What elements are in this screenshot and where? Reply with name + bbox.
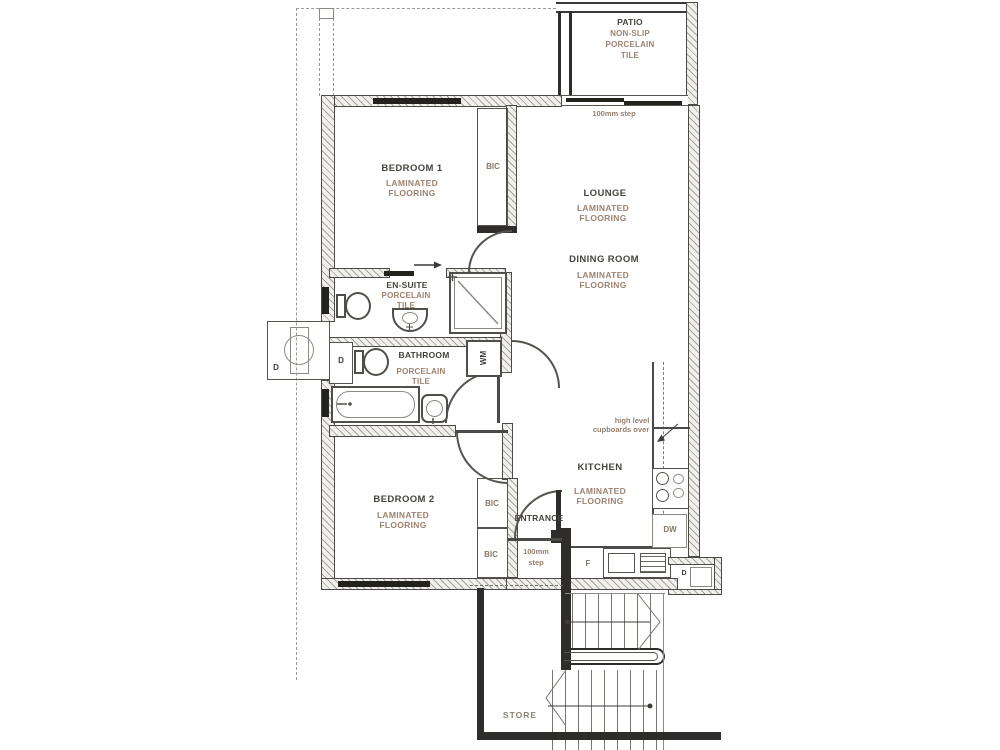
bedroom2-finish-2: FLOORING bbox=[379, 521, 426, 530]
bathroom-label: BATHROOM bbox=[398, 351, 449, 360]
dining-finish-1: LAMINATED bbox=[577, 271, 629, 280]
bathroom-window bbox=[322, 389, 329, 417]
bathroom-finish-2: TILE bbox=[412, 378, 430, 386]
entrance-step-line1: 100mm bbox=[523, 548, 549, 556]
ensuite-pocket-door bbox=[384, 271, 414, 276]
ensuite-toilet-bowl bbox=[345, 292, 371, 320]
bic-bedroom1-label: BIC bbox=[486, 163, 500, 171]
bathroom-door-leaf bbox=[497, 371, 500, 423]
bedroom2-door-arc bbox=[456, 432, 508, 484]
shower-tray-inner bbox=[454, 277, 502, 329]
wall-bedroom1-ensuite-left bbox=[329, 268, 390, 278]
lounge-finish-2: FLOORING bbox=[579, 214, 626, 223]
patio-finish-2: PORCELAIN bbox=[606, 41, 655, 49]
hall-door-arc bbox=[512, 340, 560, 388]
patio-parapet-top bbox=[556, 2, 698, 13]
cupboard-note-line2: cupboards over bbox=[593, 426, 649, 434]
entrance-step-line2: step bbox=[528, 559, 543, 567]
bedroom1-label: BEDROOM 1 bbox=[381, 164, 442, 174]
bedroom1-finish-2: FLOORING bbox=[388, 189, 435, 198]
lounge-finish-1: LAMINATED bbox=[577, 204, 629, 213]
ensuite-window bbox=[322, 287, 329, 314]
column-cap bbox=[319, 8, 334, 19]
external-duct-label: D bbox=[273, 364, 279, 372]
duct-se-label: D bbox=[681, 570, 686, 577]
kitchen-counter-end bbox=[652, 427, 690, 429]
bedroom2-window bbox=[338, 581, 430, 587]
wall-east bbox=[688, 105, 700, 557]
ensuite-basin-bowl bbox=[402, 312, 418, 324]
patio-finish-3: TILE bbox=[621, 52, 639, 60]
wall-bathroom-bedroom2 bbox=[329, 425, 456, 437]
sliding-panel-1 bbox=[566, 98, 624, 102]
patio-label: PATIO bbox=[617, 18, 643, 27]
bedroom1-window bbox=[373, 98, 461, 104]
sink-bowl bbox=[608, 553, 635, 573]
stair-right-edge bbox=[663, 594, 664, 750]
bic-bedroom2-upper-label: BIC bbox=[485, 500, 499, 508]
patio-sliding-door bbox=[562, 95, 688, 106]
patio-wall-right bbox=[686, 2, 698, 105]
floor-plan: PATIO NON-SLIP PORCELAIN TILE 100mm step… bbox=[0, 0, 1000, 750]
fridge-label: F bbox=[586, 560, 591, 568]
patio-wall-left bbox=[558, 11, 572, 97]
external-duct-circle bbox=[284, 335, 314, 365]
hob-control-2 bbox=[673, 488, 684, 498]
bedroom2-door-leaf bbox=[456, 430, 508, 433]
stair-upper-flight bbox=[572, 594, 655, 650]
hob-plate-2 bbox=[656, 489, 669, 502]
dining-label: DINING ROOM bbox=[569, 255, 639, 265]
stair-handrail-inner bbox=[564, 652, 658, 661]
entrance-label: ENTRANCE bbox=[515, 514, 564, 523]
dashed-column-outline bbox=[319, 8, 334, 96]
kitchen-finish-2: FLOORING bbox=[576, 497, 623, 506]
ground-outline-horizontal bbox=[477, 732, 721, 740]
wall-south-kitchen bbox=[506, 578, 678, 590]
kitchen-label: KITCHEN bbox=[577, 463, 622, 473]
ensuite-finish-2: TILE bbox=[397, 302, 415, 310]
bic-bedroom2-lower-label: BIC bbox=[484, 551, 498, 559]
bedroom1-door-arc bbox=[468, 230, 512, 272]
bathroom-duct-label: D bbox=[338, 357, 344, 365]
store-label: STORE bbox=[503, 711, 537, 720]
ground-outline-vertical bbox=[477, 588, 484, 738]
bedroom2-finish-1: LAMINATED bbox=[377, 511, 429, 520]
lounge-label: LOUNGE bbox=[583, 189, 626, 199]
duct-se-wall-bottom bbox=[668, 589, 722, 595]
dining-finish-2: FLOORING bbox=[579, 281, 626, 290]
pocket-door-arrow-head bbox=[434, 262, 442, 269]
wm-label: WM bbox=[480, 351, 488, 365]
patio-finish-1: NON-SLIP bbox=[610, 30, 650, 38]
bathroom-basin-bowl bbox=[426, 400, 443, 417]
dishwasher-label: DW bbox=[663, 526, 676, 534]
bathroom-toilet-bowl bbox=[363, 348, 389, 376]
hob-plate-1 bbox=[656, 472, 669, 485]
threshold-dashed-line bbox=[470, 585, 563, 586]
ensuite-label: EN-SUITE bbox=[386, 281, 427, 290]
entrance-step-edge bbox=[508, 538, 562, 541]
patio-step-note: 100mm step bbox=[592, 110, 635, 118]
cupboard-note-line1: high level bbox=[615, 417, 650, 425]
sliding-panel-2 bbox=[624, 101, 682, 105]
ensuite-finish-1: PORCELAIN bbox=[382, 292, 431, 300]
kitchen-finish-1: LAMINATED bbox=[574, 487, 626, 496]
bedroom1-finish-1: LAMINATED bbox=[386, 179, 438, 188]
bathroom-finish-1: PORCELAIN bbox=[397, 368, 446, 376]
duct-se-box bbox=[690, 567, 712, 587]
bathroom-door-arc bbox=[445, 371, 497, 423]
sink-drainer bbox=[640, 553, 666, 573]
hob-control-1 bbox=[673, 474, 684, 484]
bathtub-inner bbox=[336, 391, 415, 418]
bedroom2-label: BEDROOM 2 bbox=[373, 495, 434, 505]
property-line-horizontal bbox=[296, 8, 556, 9]
